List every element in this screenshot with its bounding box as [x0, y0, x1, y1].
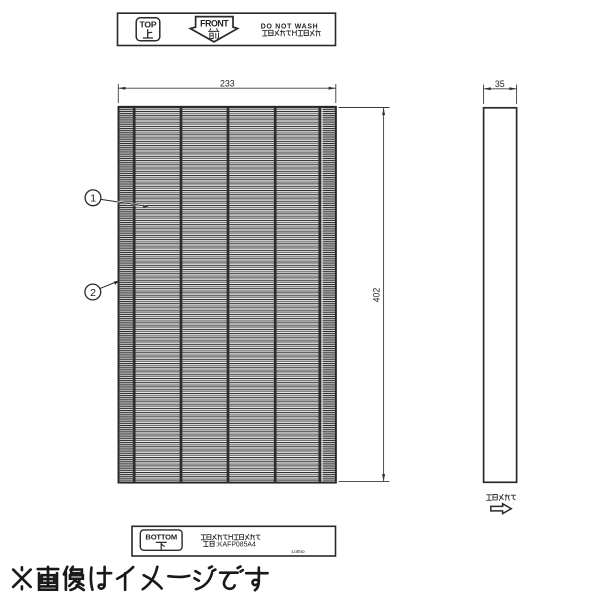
svg-text:1: 1 [90, 193, 96, 205]
svg-text:402: 402 [372, 288, 382, 303]
svg-text:TOP: TOP [140, 20, 157, 30]
svg-text:LotNo: LotNo [292, 549, 305, 555]
svg-text:FRONT: FRONT [200, 19, 229, 29]
svg-text:2: 2 [90, 287, 96, 299]
svg-text:BOTTOM: BOTTOM [145, 532, 177, 541]
svg-text:35: 35 [495, 79, 505, 89]
svg-text:DO NOT WASH: DO NOT WASH [261, 23, 319, 30]
svg-text:233: 233 [220, 78, 235, 88]
svg-text::KAFP085A4: :KAFP085A4 [216, 541, 256, 548]
